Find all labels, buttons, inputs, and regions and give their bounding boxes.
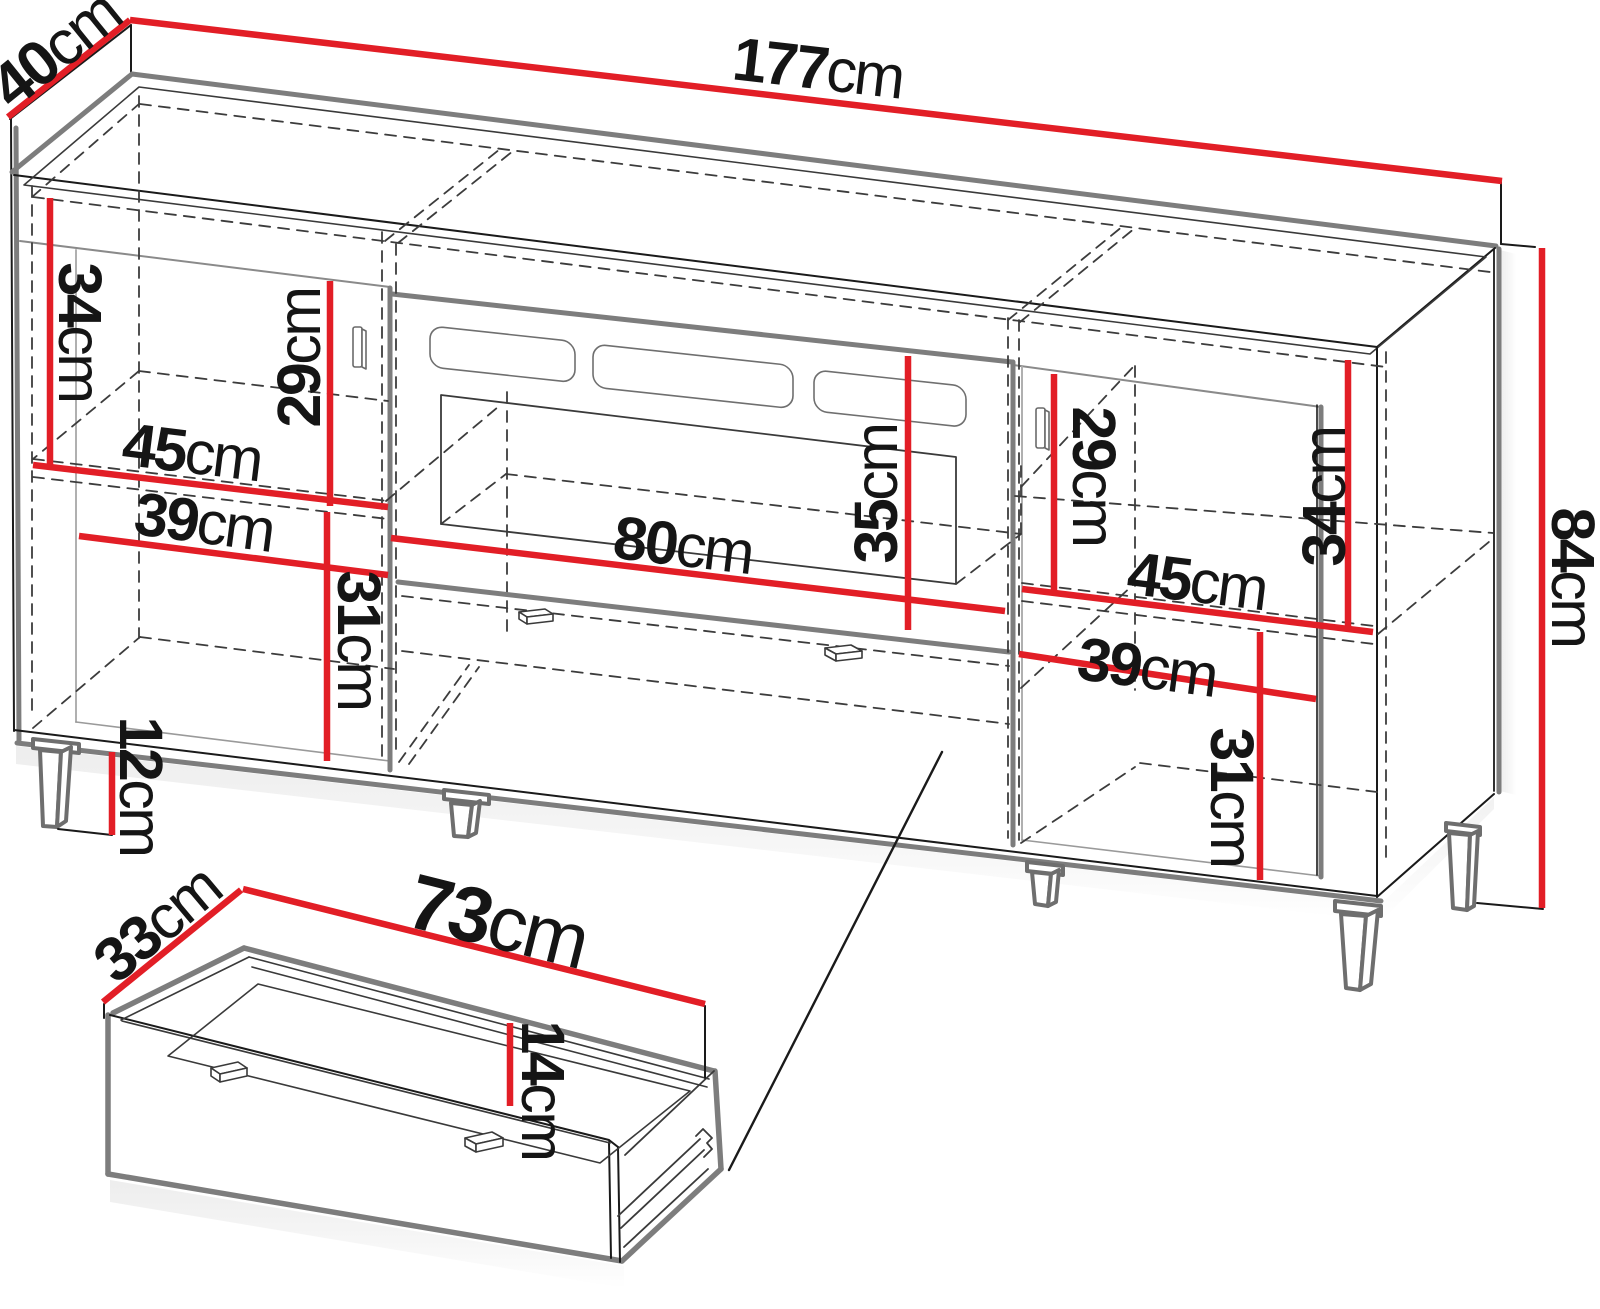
svg-text:12cm: 12cm xyxy=(107,716,175,855)
svg-text:35cm: 35cm xyxy=(842,424,910,563)
svg-text:31cm: 31cm xyxy=(325,570,393,709)
svg-text:29cm: 29cm xyxy=(1060,406,1128,545)
svg-text:29cm: 29cm xyxy=(265,288,333,427)
svg-text:34cm: 34cm xyxy=(1290,427,1358,566)
svg-text:34cm: 34cm xyxy=(46,262,114,401)
svg-text:31cm: 31cm xyxy=(1198,727,1266,866)
svg-text:14cm: 14cm xyxy=(509,1020,577,1159)
svg-text:84cm: 84cm xyxy=(1539,507,1600,646)
